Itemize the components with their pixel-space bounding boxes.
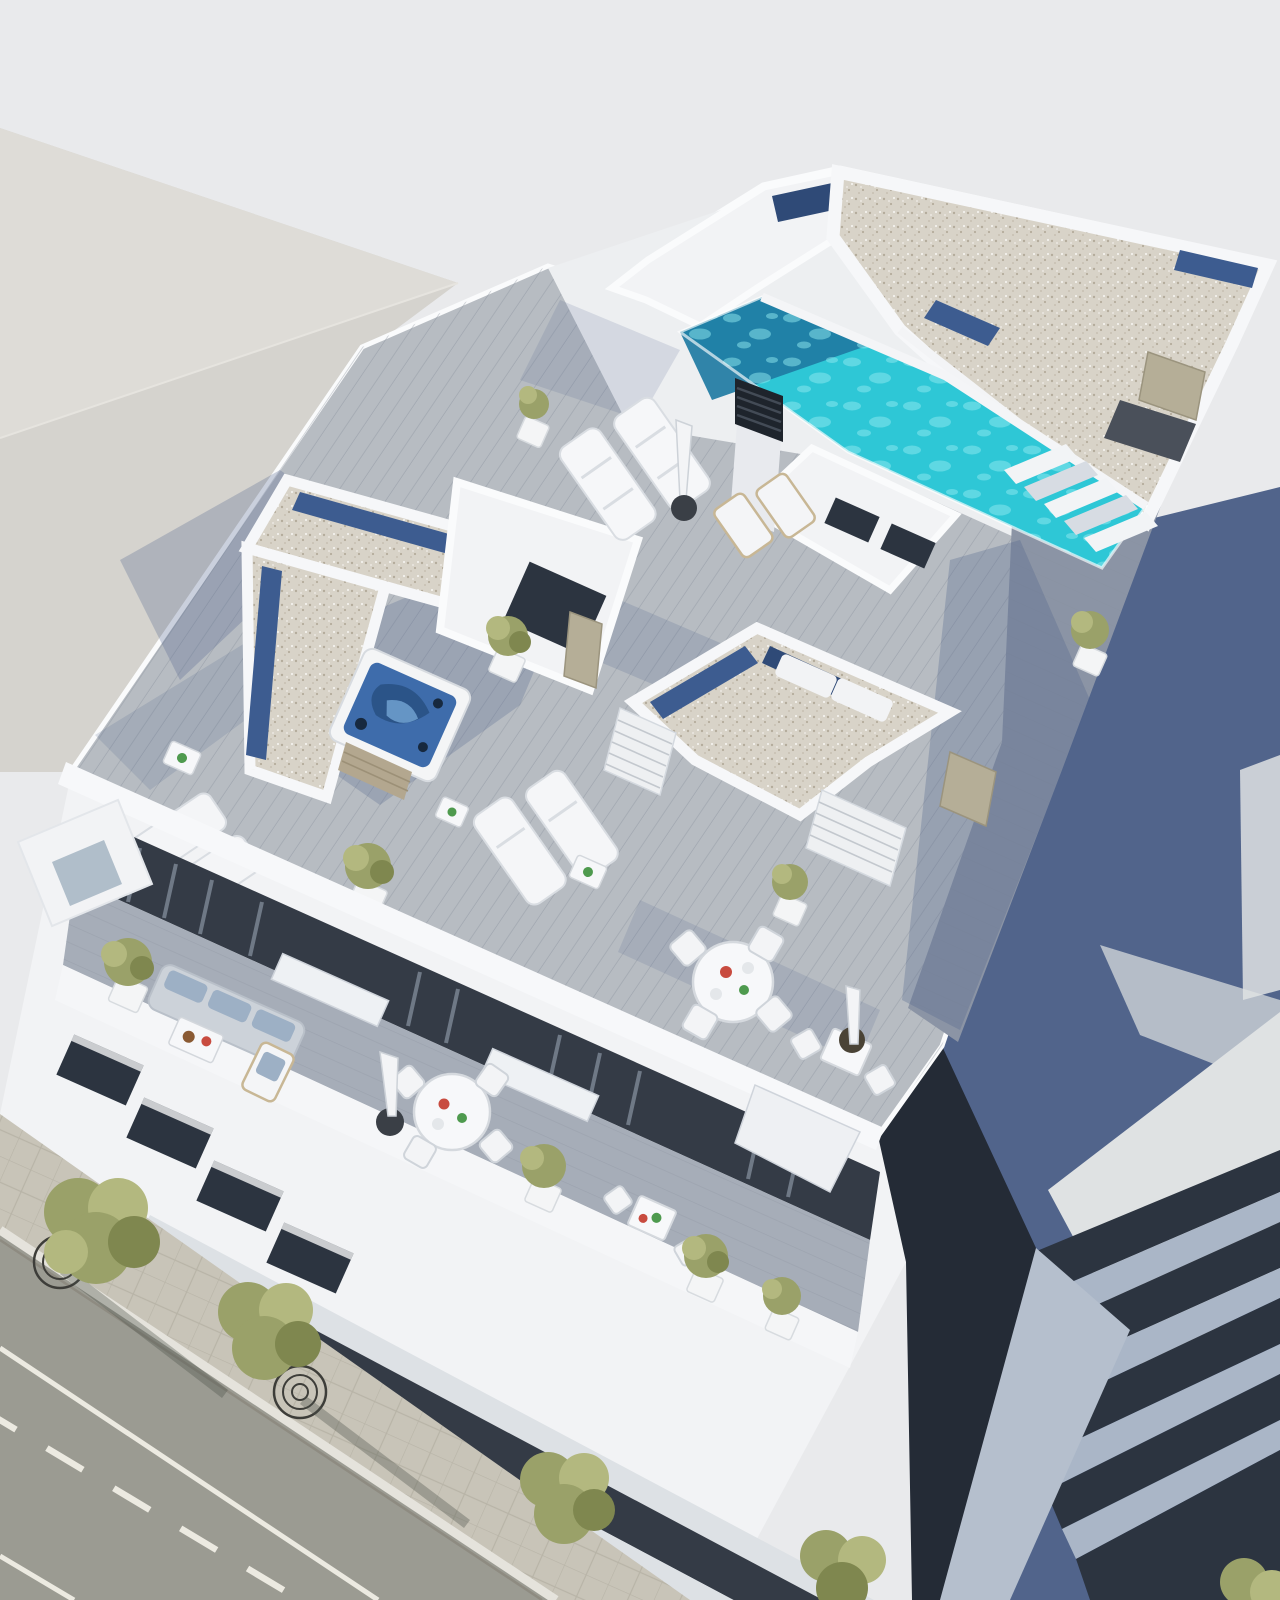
aerial-render-scene: Aerial 3D architectural rendering of a w… <box>0 0 1280 1600</box>
roof-door <box>564 612 602 688</box>
neighbor-right-lit-patch <box>1240 755 1280 1000</box>
render-stage: Aerial 3D architectural rendering of a w… <box>0 0 1280 1600</box>
